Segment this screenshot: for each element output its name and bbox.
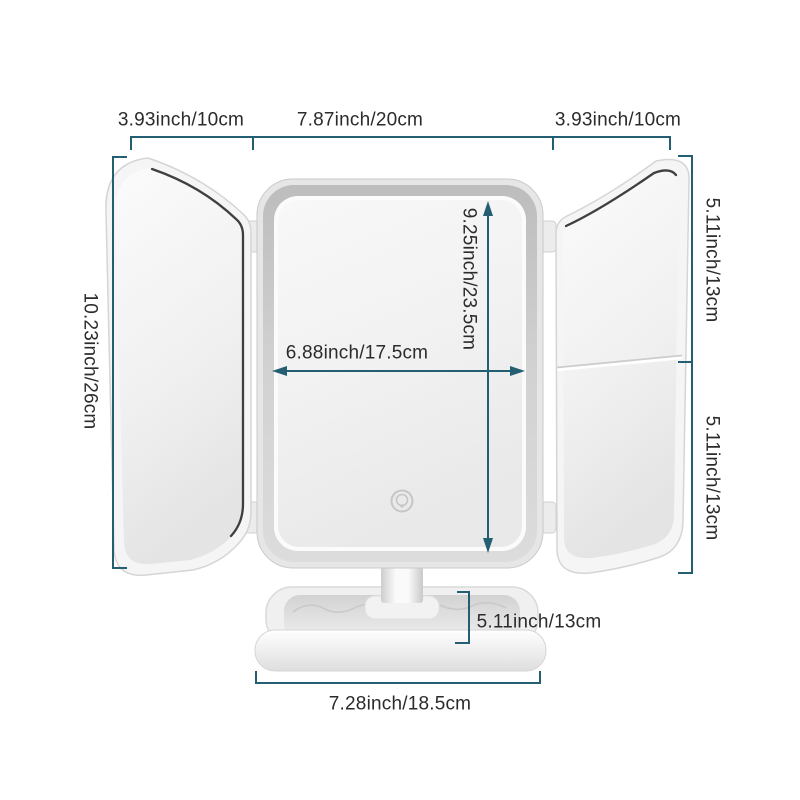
base-front-rim bbox=[255, 630, 546, 671]
dimension-bracket-top bbox=[131, 137, 670, 150]
dim-label-base-depth: 5.11inch/13cm bbox=[477, 613, 602, 632]
dim-label-center-panel-width: 7.87inch/20cm bbox=[297, 111, 423, 130]
left-mirror-glass bbox=[115, 168, 243, 564]
left-mirror-panel bbox=[106, 158, 251, 575]
center-mirror-panel bbox=[257, 179, 543, 568]
dim-label-left-panel-width: 3.93inch/10cm bbox=[118, 111, 244, 130]
dim-label-overall-height: 10.23inch/26cm bbox=[81, 293, 100, 430]
dim-label-right-top-mirror-height: 5.11inch/13cm bbox=[703, 198, 722, 323]
dim-label-right-bottom-mirror-height: 5.11inch/13cm bbox=[703, 416, 722, 541]
dim-label-base-width: 7.28inch/18.5cm bbox=[329, 695, 471, 714]
dim-label-glass-width: 6.88inch/17.5cm bbox=[286, 344, 428, 363]
dim-label-right-panel-width: 3.93inch/10cm bbox=[555, 111, 681, 130]
product-dimension-diagram: 3.93inch/10cm 7.87inch/20cm 3.93inch/10c… bbox=[0, 0, 800, 800]
dim-label-glass-height: 9.25inch/23.5cm bbox=[460, 208, 479, 350]
stand-neck bbox=[381, 567, 423, 603]
right-mirror-panel bbox=[556, 160, 689, 574]
dimension-bracket-base-width bbox=[256, 671, 540, 683]
